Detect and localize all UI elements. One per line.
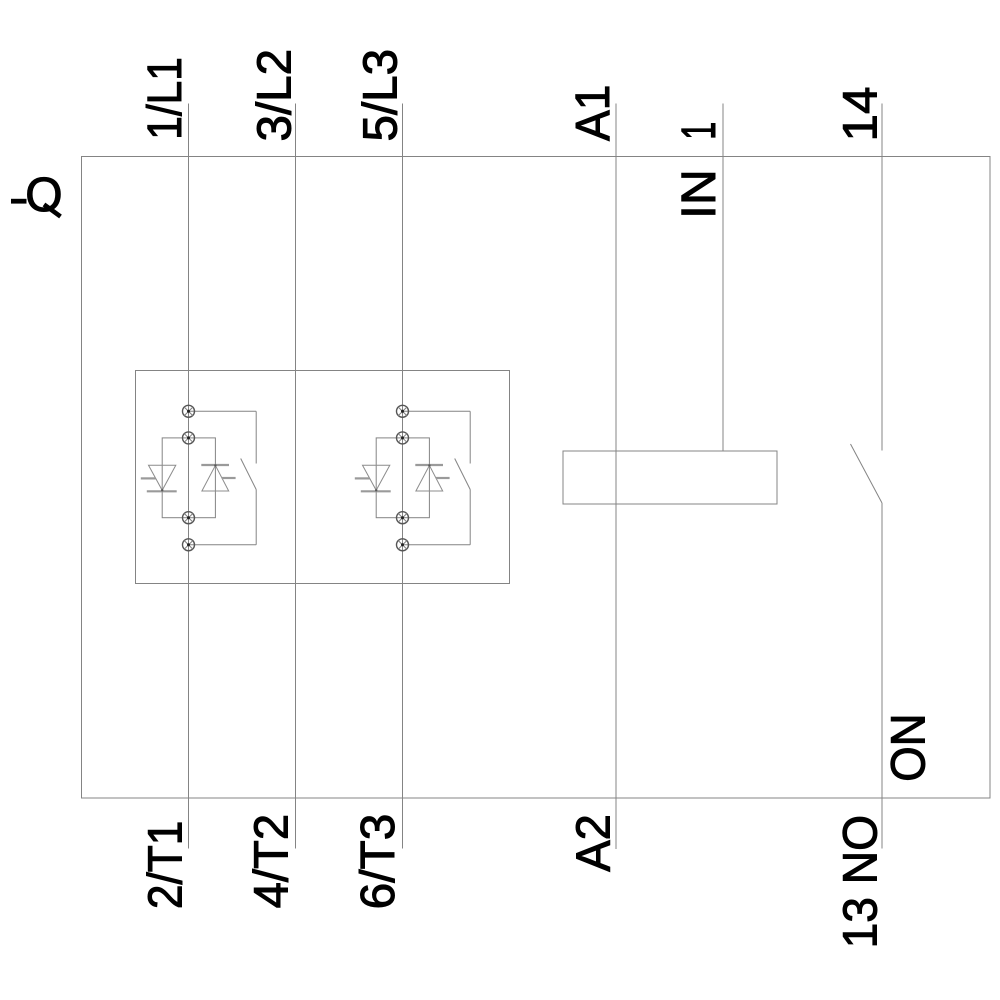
svg-text:IN: IN: [673, 169, 726, 219]
svg-text:2/T1: 2/T1: [139, 821, 192, 910]
svg-text:A2: A2: [568, 814, 621, 872]
svg-text:4/T2: 4/T2: [246, 814, 299, 909]
svg-text:A1: A1: [567, 85, 620, 141]
svg-text:6/T3: 6/T3: [352, 814, 405, 910]
svg-text:1/L1: 1/L1: [139, 57, 192, 140]
svg-text:13 NO: 13 NO: [835, 815, 888, 949]
svg-text:3/L2: 3/L2: [248, 49, 301, 142]
svg-text:5/L3: 5/L3: [354, 49, 407, 142]
svg-text:ON: ON: [883, 713, 936, 781]
svg-text:1: 1: [673, 122, 726, 140]
svg-text:14: 14: [835, 87, 888, 142]
